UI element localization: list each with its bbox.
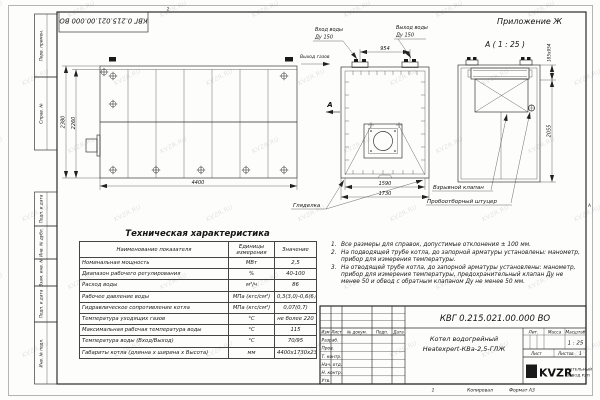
view-direction-arrow: А	[326, 101, 340, 112]
param-value: 4400х1730х2380	[275, 347, 317, 358]
param-value: 115	[275, 325, 317, 336]
detail-view-a: А ( 1 : 25 )	[426, 40, 556, 205]
param-unit: мм	[229, 347, 275, 358]
sig-row-tkontr: Т. контр.	[322, 354, 342, 360]
sig-row-prov: Пров.	[322, 346, 335, 352]
table-row: Номинальная мощностьМВт2,5	[80, 258, 317, 269]
rev-header-docnum: № докум.	[346, 330, 367, 335]
title-block-doc-number: КВГ 0.215.021.00.000 ВО	[440, 314, 551, 324]
scale-value: 1 : 25	[568, 341, 584, 347]
zone-number-bottom: 1	[432, 388, 435, 394]
table-row: Температура воды (Вход/Выход)°С70/95	[80, 336, 317, 347]
param-unit: МПа (кгс/см²)	[229, 291, 275, 302]
company-line2: ЗАВОД РЭП	[567, 373, 590, 378]
dim-width-body: 1590	[379, 181, 392, 187]
dim-length: 4400	[192, 180, 205, 186]
param-value: 70/95	[275, 336, 317, 347]
front-bolt-ticks	[345, 71, 425, 174]
margin-label-inv-podl: Инв. № подл.	[39, 339, 44, 368]
front-view-dimensions: 954 1590 1730	[341, 46, 429, 200]
explosion-valve	[468, 68, 532, 112]
param-unit: %	[229, 269, 275, 280]
sampling-fitting-label: Пробоотборный штуцер	[427, 199, 497, 205]
product-name-line1: Котел водогрейный	[430, 335, 498, 343]
param-name: Максимальная рабочая температура воды	[80, 325, 229, 336]
col-header-name: Наименование показателя	[80, 242, 229, 258]
sig-row-nkontr: Н. контр.	[322, 370, 343, 376]
sheet-label: Лист	[530, 351, 542, 356]
table-row: Расход водым³/ч86	[80, 280, 317, 291]
param-unit: м³/ч	[229, 280, 275, 291]
dim-height-overall: 2380	[61, 116, 67, 129]
company-line1: КОТЕЛЬНЫЙ	[567, 367, 593, 372]
note-text: Все размеры для справок, допустимые откл…	[341, 242, 531, 249]
notes-section: 1. Все размеры для справок, допустимые о…	[331, 242, 582, 287]
detail-view-dimensions: 185х954 2055	[540, 43, 556, 182]
side-top-fittings	[100, 57, 293, 76]
note-text: На отводящей трубе котла, до запорной ар…	[341, 265, 582, 286]
table-row: Габариты котла (длинна х ширина х Высота…	[80, 347, 317, 358]
side-inlet-flange	[86, 135, 100, 156]
note-item: 3. На отводящей трубе котла, до запорной…	[331, 265, 582, 286]
water-outlet-label: Выход воды	[396, 25, 428, 31]
table-row: Температура уходящих газов°Сне более 220	[80, 313, 317, 324]
dim-width-overall: 1730	[379, 191, 392, 197]
copied-label: Копировал	[467, 388, 493, 394]
view-arrow-letter: А	[326, 101, 332, 109]
param-unit: °С	[229, 336, 275, 347]
water-inlet-label: Вход воды	[315, 27, 343, 33]
lit-label: Лит.	[528, 330, 539, 335]
margin-label-sprav: Справ. №	[39, 103, 44, 124]
mass-label: Масса	[548, 330, 562, 335]
appendix-label: Приложение Ж	[497, 17, 562, 26]
tech-table: Наименование показателя Единицы измерени…	[79, 241, 317, 359]
param-name: Температура воды (Вход/Выход)	[80, 336, 229, 347]
note-number: 2.	[331, 250, 341, 264]
water-inlet-dn: Ду 150	[314, 35, 333, 41]
doc-number-rotated-text: КВГ 0.215.021.00.000 ВО	[59, 17, 148, 25]
title-block: КВГ 0.215.021.00.000 ВО Котел водогрейны…	[320, 306, 592, 384]
product-name-line2: Heatexpert-КВа-2,5-ГЛЖ	[423, 345, 507, 353]
rev-header-izm: Изм	[321, 330, 329, 335]
tech-table-title: Техническая характеристика	[79, 229, 316, 239]
water-nozzles	[352, 59, 418, 68]
table-row: Диапазон рабочего регулирования%40-100	[80, 269, 317, 280]
param-name: Температура уходящих газов	[80, 313, 229, 324]
rev-header-data: Дата	[392, 330, 404, 335]
param-unit: °С	[229, 325, 275, 336]
param-name: Диапазон рабочего регулирования	[80, 269, 229, 280]
gas-outlet-label: Выход газов	[300, 54, 330, 60]
sig-row-razrab: Разраб.	[322, 338, 339, 344]
param-value: 0,07(0,7)	[275, 302, 317, 313]
dim-valve: 185х954	[547, 43, 552, 62]
col-header-unit: Единицы измерения	[229, 242, 275, 258]
margin-label-perv-primen: Перв. примен.	[39, 30, 44, 61]
sight-glass-callout: Гляделка	[291, 180, 423, 209]
margin-label-vzam-inv: Взам. инв. №	[39, 258, 44, 287]
note-number: 1.	[331, 242, 341, 249]
param-unit: °С	[229, 313, 275, 324]
note-item: 1. Все размеры для справок, допустимые о…	[331, 242, 582, 249]
rev-header-podp: Подп.	[376, 330, 388, 335]
rev-header-list: Лист	[330, 330, 342, 335]
margin-label-podp-data-1: Подп. и дата	[39, 194, 44, 223]
sampling-fitting	[528, 105, 535, 112]
param-value: не более 220	[275, 313, 317, 324]
boiler-front-view: А 954 1590 1730 Вход воды Ду 150	[313, 25, 429, 200]
note-number: 3.	[331, 265, 341, 286]
detail-callouts: Взрывной клапан Пробоотборный штуцер	[426, 112, 530, 205]
col-header-value: Значение	[275, 242, 317, 258]
scale-label: Масштаб	[566, 330, 586, 335]
bottom-margin: 1 Копировал Формат А3	[432, 388, 535, 394]
margin-label-podp-data-2: Подп. и дата	[39, 289, 44, 318]
param-value: 40-100	[275, 269, 317, 280]
water-outlet-callout: Выход воды Ду 150	[394, 25, 428, 58]
param-value: 86	[275, 280, 317, 291]
param-name: Рабочее давление воды	[80, 291, 229, 302]
water-outlet-dn: Ду 150	[395, 33, 414, 39]
margin-label-inv-dubl: Инв. № дубл.	[39, 228, 44, 257]
drawing-sheet: KVZR.RUKVZR.RUKVZR.RUKVZR.RUKVZR.RUKVZR.…	[0, 0, 600, 400]
company-logo: KVZR КОТЕЛЬНЫЙ ЗАВОД РЭП	[526, 365, 592, 380]
sig-row-utv: Утв.	[322, 378, 331, 384]
table-row: Гидравлическое сопротивление котлаМПа (к…	[80, 302, 317, 313]
sight-glass-label: Гляделка	[293, 203, 321, 209]
param-unit: МВт	[229, 258, 275, 269]
detail-view-title: А ( 1 : 25 )	[484, 40, 525, 49]
param-value: 0,3(3,0)-0,6(6,0)	[275, 291, 317, 302]
dim-detail-height: 2055	[547, 125, 553, 138]
format-label: Формат А3	[509, 388, 535, 394]
burner-flange	[364, 124, 402, 158]
dim-height-body: 2260	[71, 117, 77, 130]
param-unit: МПа (кгс/см²)	[229, 302, 275, 313]
sheets-label: Листов	[557, 351, 574, 356]
param-name: Расход воды	[80, 280, 229, 291]
note-text: На подводящей трубе котла, до запорной а…	[341, 250, 582, 264]
table-row: Максимальная рабочая температура воды°С1…	[80, 325, 317, 336]
table-row: Рабочее давление водыМПа (кгс/см²)0,3(3,…	[80, 291, 317, 302]
explosion-valve-label: Взрывной клапан	[433, 185, 484, 191]
sheets-value: 1	[579, 351, 582, 357]
param-value: 2,5	[275, 258, 317, 269]
sig-row-nachotd: Нач. отд.	[322, 362, 343, 368]
tech-characteristics-section: Техническая характеристика Наименование …	[79, 229, 316, 359]
margin-cells: Перв. примен. Справ. № Подп. и дата Инв.…	[35, 14, 58, 384]
param-name: Номинальная мощность	[80, 258, 229, 269]
zone-number-top: 2	[167, 7, 170, 12]
side-view-dimensions: 2380 2260 4400	[61, 66, 298, 190]
zone-letter-right: А	[588, 203, 591, 208]
note-item: 2. На подводящей трубе котла, до запорно…	[331, 250, 582, 264]
tech-table-header-row: Наименование показателя Единицы измерени…	[80, 242, 317, 258]
param-name: Гидравлическое сопротивление котла	[80, 302, 229, 313]
param-name: Габариты котла (длинна х ширина х Высота…	[80, 347, 229, 358]
dim-nozzle-spacing: 954	[380, 46, 390, 52]
doc-number-box-rotated: КВГ 0.215.021.00.000 ВО	[59, 12, 148, 32]
gas-outlet-callout: Выход газов	[300, 54, 330, 64]
